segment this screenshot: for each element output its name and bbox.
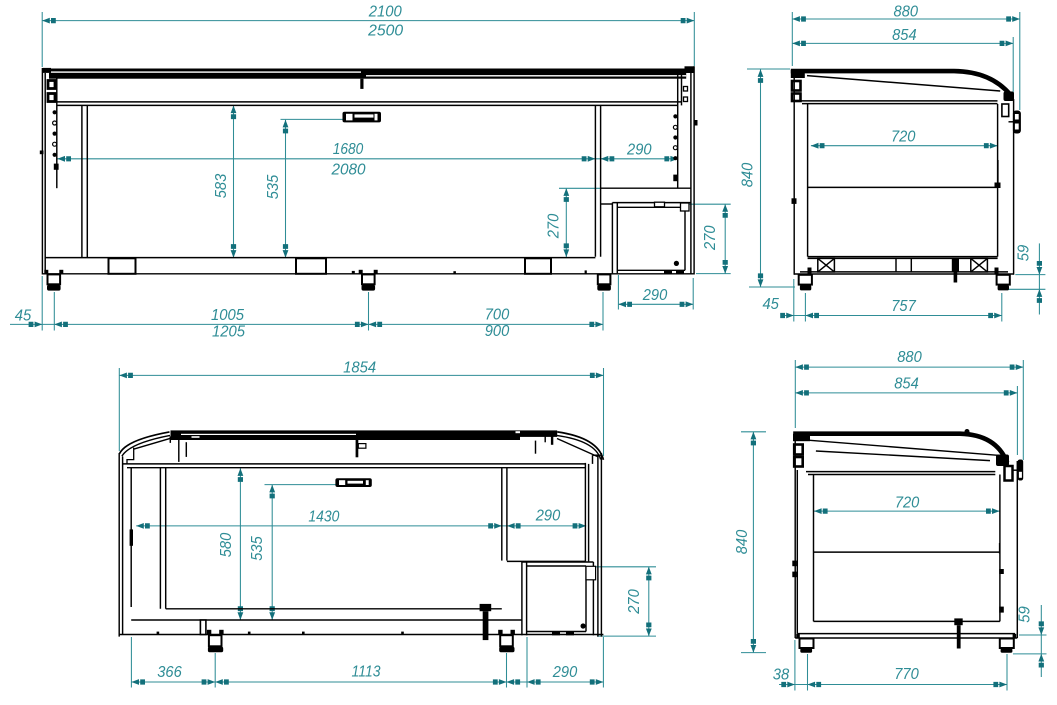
svg-text:720: 720	[895, 495, 920, 512]
svg-text:770: 770	[894, 666, 919, 683]
svg-text:1680: 1680	[333, 141, 364, 158]
svg-text:38: 38	[773, 667, 790, 684]
svg-text:580: 580	[218, 532, 235, 557]
svg-text:1005: 1005	[211, 307, 244, 324]
svg-text:290: 290	[626, 141, 652, 158]
svg-text:1854: 1854	[343, 360, 376, 377]
svg-text:1113: 1113	[352, 664, 381, 681]
svg-text:535: 535	[249, 536, 266, 561]
svg-text:880: 880	[894, 3, 919, 20]
svg-text:700: 700	[485, 307, 510, 324]
svg-text:290: 290	[535, 507, 561, 524]
svg-text:840: 840	[740, 162, 757, 187]
svg-text:366: 366	[157, 664, 182, 681]
svg-text:290: 290	[642, 287, 668, 304]
svg-text:45: 45	[15, 308, 32, 325]
svg-text:854: 854	[894, 376, 919, 393]
svg-text:854: 854	[892, 27, 917, 44]
svg-text:720: 720	[891, 129, 916, 146]
svg-text:840: 840	[734, 529, 751, 554]
svg-text:1205: 1205	[212, 324, 245, 341]
svg-text:1430: 1430	[308, 508, 339, 525]
svg-text:290: 290	[552, 664, 578, 681]
svg-text:270: 270	[702, 225, 719, 251]
svg-text:2080: 2080	[331, 162, 366, 179]
svg-text:757: 757	[891, 298, 917, 315]
svg-text:45: 45	[762, 296, 779, 313]
svg-text:583: 583	[213, 173, 230, 198]
svg-text:2500: 2500	[367, 23, 403, 40]
svg-text:900: 900	[485, 323, 510, 340]
svg-text:880: 880	[897, 349, 922, 366]
svg-text:59: 59	[1017, 606, 1034, 623]
svg-text:270: 270	[546, 213, 563, 239]
svg-text:535: 535	[265, 174, 282, 199]
svg-text:270: 270	[626, 589, 643, 615]
svg-text:59: 59	[1016, 244, 1033, 261]
svg-text:2100: 2100	[368, 4, 402, 21]
